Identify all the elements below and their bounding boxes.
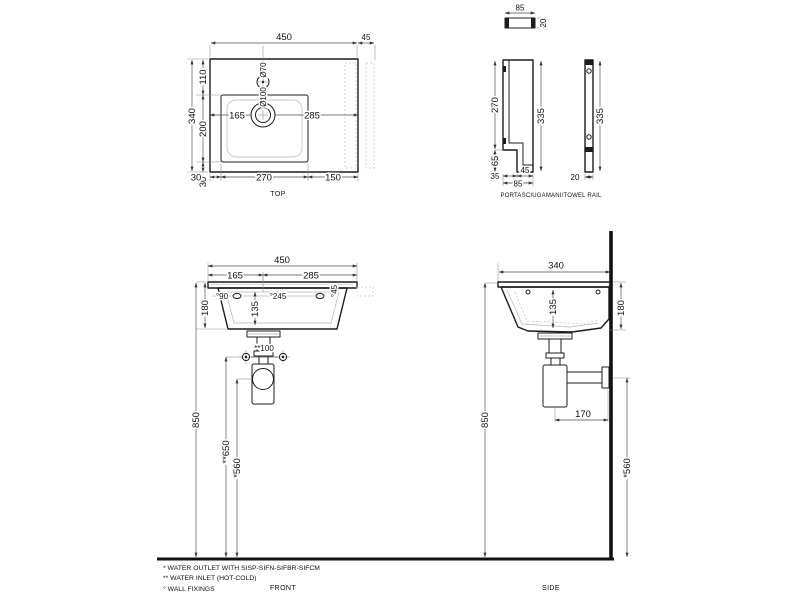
dim-side-depth: 340 [548, 261, 564, 272]
trap-ring [253, 369, 274, 390]
wall-outlet-flange [602, 367, 609, 388]
towel-rail-caption: PORTASCIUGAMANI/TOWEL RAIL [501, 193, 602, 199]
dim-side-bowl-depth: 135 [548, 299, 559, 315]
dim-rail-plan-width: 85 [516, 4, 525, 13]
dim-side-rim-height: 850 [480, 412, 491, 428]
dim-top-bowl-width: 270 [256, 173, 272, 184]
side-bottle-trap [543, 365, 567, 407]
dim-top-back: 110 [198, 69, 209, 84]
dim-rail-hook-height: 65 [490, 156, 501, 167]
top-view-caption: TOP [270, 191, 285, 198]
note-water-outlet: * WATER OUTLET WITH SISP-SIFN-SIFBR-SIFC… [163, 565, 320, 572]
dim-rail-height: 335 [536, 108, 547, 124]
dim-front-center-right: 285 [303, 271, 319, 282]
dim-front-bowl-depth: 135 [250, 301, 261, 317]
dim-top-center-left: 165 [229, 111, 245, 122]
note-water-inlet: ** WATER INLET (HOT-COLD) [163, 575, 257, 582]
side-view-caption: SIDE [542, 585, 560, 592]
dim-rail-hook-inset: 35 [491, 172, 500, 181]
front-view-caption: FRONT [270, 585, 296, 592]
dim-front-inlet-height: **650 [221, 440, 232, 463]
dim-front-height: 180 [200, 300, 211, 316]
dim-top-depth: 340 [187, 108, 198, 124]
dim-rail-hook-width: 45 [521, 166, 530, 175]
technical-drawing: 450 45 340 110 200 30 165 285 Ø70 Ø100 [0, 0, 800, 600]
dim-drain-diameter: Ø100 [259, 87, 268, 107]
dim-top-right-margin: 150 [325, 173, 341, 184]
side-siphon-nut [546, 353, 564, 358]
dim-faucet-diameter: Ø70 [259, 62, 268, 78]
dim-rail-front-thickness: 20 [571, 173, 580, 182]
dim-front-rim-height: 850 [191, 412, 202, 428]
dim-inlet-span: **100 [254, 344, 274, 353]
dim-front-width: 450 [274, 255, 290, 266]
dim-front-center-left: 165 [227, 271, 243, 282]
dim-top-center-right: 285 [304, 111, 320, 122]
dim-side-height: 180 [616, 300, 627, 316]
drawing-sheet: 450 45 340 110 200 30 165 285 Ø70 Ø100 [0, 0, 800, 600]
dim-front-fix-left: °90 [216, 292, 229, 301]
dim-rail-plan-thickness: 20 [539, 18, 548, 27]
dim-front-fix-right: °45 [330, 284, 339, 297]
dim-rail-slot: 270 [490, 97, 501, 113]
dim-top-width: 450 [276, 32, 292, 43]
wall-outlet-pipe [567, 372, 603, 383]
dim-rail-overall-width: 85 [514, 180, 523, 189]
dim-front-outlet-height: *560 [232, 458, 243, 478]
dim-side-trap-offset: 170 [575, 409, 591, 420]
dim-front-fix-span: °245 [270, 292, 287, 301]
dim-top-left-margin: 30 [191, 173, 202, 184]
note-wall-fixings: ° WALL FIXINGS [163, 585, 215, 593]
sheet-background [0, 0, 800, 600]
dim-rail-front-height: 335 [595, 108, 606, 124]
dim-top-bowl-depth: 200 [198, 121, 209, 137]
dim-rail-offset: 45 [362, 33, 371, 42]
dim-side-outlet-height: *560 [622, 458, 633, 478]
